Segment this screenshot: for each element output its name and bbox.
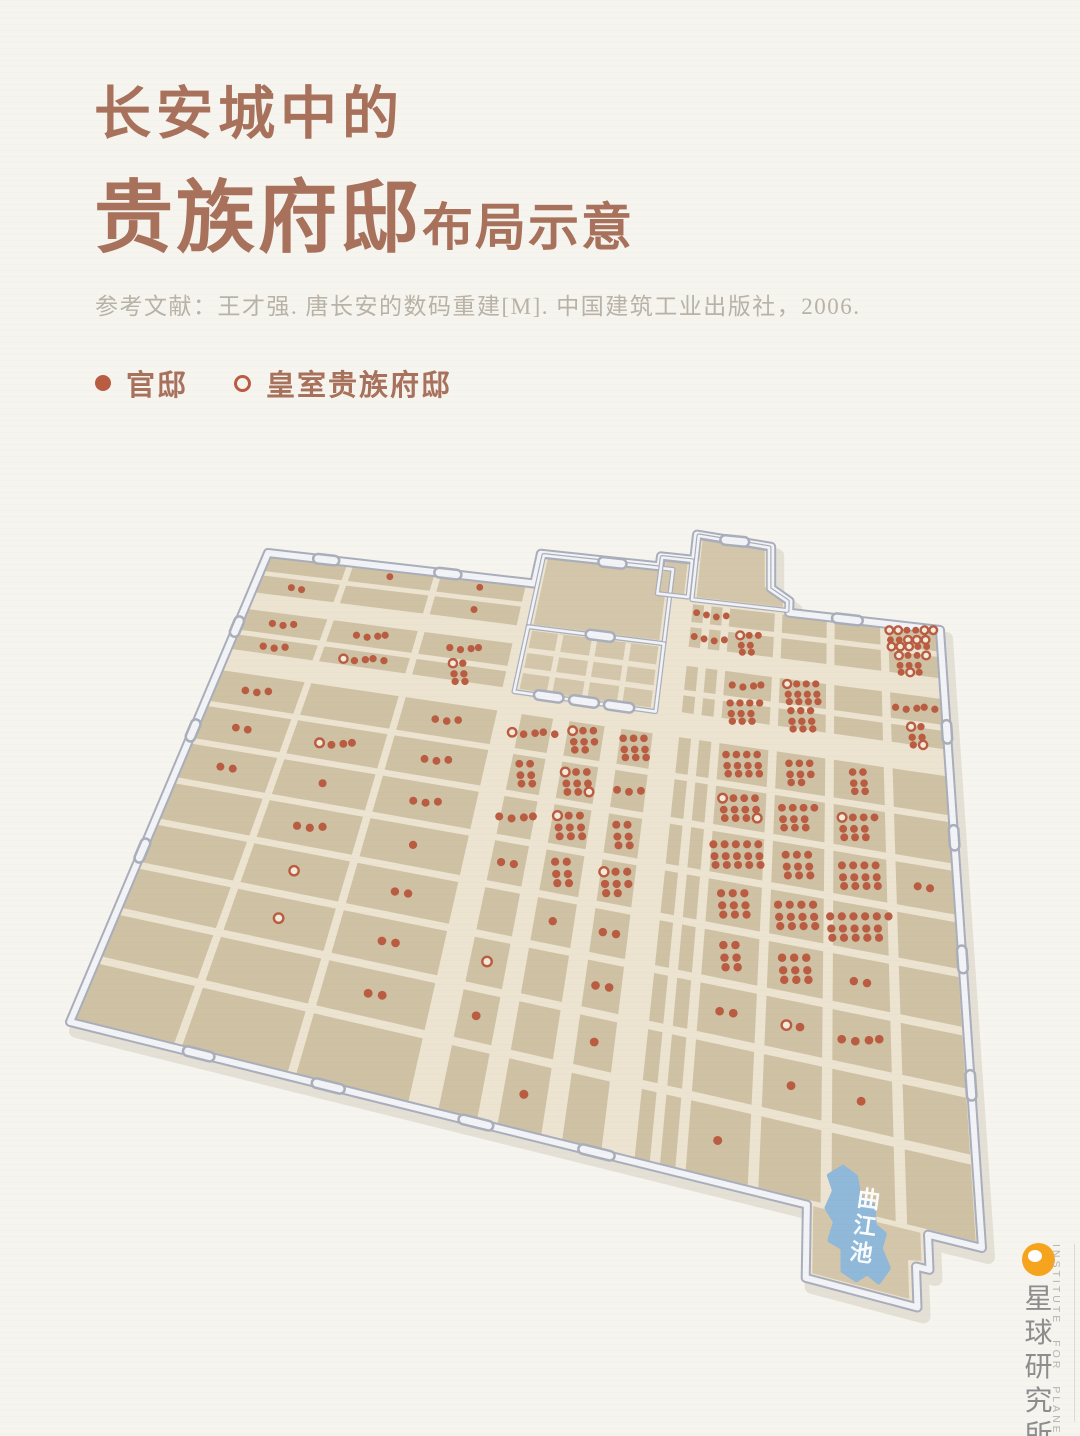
official-residence-dot <box>873 912 881 920</box>
official-residence-dot <box>562 780 570 788</box>
official-residence-dot <box>729 794 737 802</box>
official-residence-dot <box>850 977 858 985</box>
official-residence-dot <box>244 726 252 734</box>
gate-icon-face <box>190 724 195 736</box>
official-residence-dot <box>460 670 467 677</box>
official-residence-dot <box>910 741 917 748</box>
official-residence-dot <box>570 738 578 746</box>
official-residence-dot <box>811 922 819 930</box>
official-residence-dot <box>573 780 581 788</box>
official-residence-dot <box>601 880 609 888</box>
official-residence-dot <box>551 858 559 866</box>
official-residence-dot <box>729 889 737 897</box>
official-residence-dot <box>798 718 805 725</box>
royal-residence-dot <box>289 866 298 875</box>
official-residence-dot <box>475 644 482 651</box>
official-residence-dot <box>613 833 621 841</box>
official-residence-dot <box>797 901 805 909</box>
step-area <box>662 561 688 594</box>
official-residence-dot <box>859 768 867 776</box>
official-residence-dot <box>729 1009 738 1018</box>
official-residence-dot <box>747 710 754 717</box>
official-residence-dot <box>802 824 810 832</box>
official-residence-dot <box>584 780 592 788</box>
official-residence-dot <box>549 917 557 925</box>
official-residence-dot <box>605 983 614 992</box>
official-residence-dot <box>578 832 586 840</box>
gate-icon-face <box>318 559 335 561</box>
official-residence-dot <box>838 912 846 920</box>
royal-residence-dot <box>896 643 904 651</box>
royal-residence-dot <box>905 643 913 651</box>
official-residence-dot <box>721 636 728 643</box>
official-residence-dot <box>495 812 503 820</box>
official-residence-dot <box>719 941 727 949</box>
official-residence-dot <box>551 730 559 738</box>
official-residence-dot <box>915 662 922 669</box>
official-residence-dot <box>828 934 836 942</box>
official-residence-dot <box>260 643 267 650</box>
ward-block <box>589 908 630 959</box>
official-residence-dot <box>731 806 739 814</box>
official-residence-dot <box>784 871 792 879</box>
official-residence-dot <box>386 573 393 580</box>
official-residence-dot <box>787 1081 796 1090</box>
official-residence-dot <box>872 861 880 869</box>
official-residence-dot <box>290 621 297 628</box>
official-residence-dot <box>422 799 430 807</box>
official-residence-dot <box>723 762 731 770</box>
official-residence-dot <box>746 699 753 706</box>
royal-residence-dot <box>482 957 491 966</box>
official-residence-dot <box>783 863 791 871</box>
official-residence-dot <box>904 652 911 659</box>
official-residence-dot <box>875 1035 884 1044</box>
royal-residence-dot <box>782 1020 791 1029</box>
royal-residence-dot <box>449 659 457 667</box>
official-residence-dot <box>510 860 518 868</box>
official-residence-dot <box>641 746 649 754</box>
official-residence-dot <box>794 863 802 871</box>
filled-dot-icon <box>95 375 111 391</box>
official-residence-dot <box>757 681 764 688</box>
official-residence-dot <box>723 612 730 619</box>
official-residence-dot <box>381 632 388 639</box>
official-residence-dot <box>552 870 560 878</box>
official-residence-dot <box>721 963 729 971</box>
official-residence-dot <box>897 662 904 669</box>
official-residence-dot <box>800 804 808 812</box>
gate-icon-face <box>946 725 947 739</box>
official-residence-dot <box>785 691 792 698</box>
official-residence-dot <box>691 633 698 640</box>
page-title-line1: 长安城中的 <box>94 84 634 147</box>
official-residence-dot <box>850 873 858 881</box>
official-residence-dot <box>348 739 356 747</box>
official-residence-dot <box>849 768 857 776</box>
official-residence-dot <box>752 806 760 814</box>
official-residence-dot <box>591 738 599 746</box>
official-residence-dot <box>642 754 650 762</box>
official-residence-dot <box>779 966 787 974</box>
legend-item-official: 官邸 <box>95 362 188 404</box>
ward-block <box>539 849 584 897</box>
official-residence-dot <box>809 725 816 732</box>
official-residence-dot <box>839 825 847 833</box>
official-residence-dot <box>454 716 462 724</box>
official-residence-dot <box>565 812 573 820</box>
official-residence-dot <box>571 746 579 754</box>
official-residence-dot <box>519 1090 528 1099</box>
ward-block <box>581 960 624 1015</box>
official-residence-dot <box>780 824 788 832</box>
official-residence-dot <box>461 678 468 685</box>
official-residence-dot <box>740 794 748 802</box>
official-residence-dot <box>826 912 834 920</box>
official-residence-dot <box>564 788 572 796</box>
official-residence-dot <box>776 922 784 930</box>
royal-residence-dot <box>736 631 744 639</box>
official-residence-dot <box>630 735 638 743</box>
official-residence-dot <box>515 760 523 768</box>
official-residence-dot <box>508 814 516 822</box>
brand-name-en: INSTITUTE FOR PLANETS <box>1050 1244 1062 1436</box>
official-residence-dot <box>378 937 387 946</box>
official-residence-dot <box>591 981 600 990</box>
official-residence-dot <box>790 953 798 961</box>
official-residence-dot <box>614 841 622 849</box>
official-residence-dot <box>719 910 727 918</box>
official-residence-dot <box>863 934 871 942</box>
official-residence-dot <box>339 740 347 748</box>
official-residence-dot <box>812 680 819 687</box>
official-residence-dot <box>713 1136 722 1145</box>
gate-icon-face <box>590 635 610 637</box>
official-residence-dot <box>446 644 453 651</box>
official-residence-dot <box>731 910 739 918</box>
official-residence-dot <box>724 770 732 778</box>
official-residence-dot <box>741 901 749 909</box>
official-residence-dot <box>729 718 736 725</box>
official-residence-dot <box>851 787 859 795</box>
official-residence-dot <box>444 756 452 764</box>
official-residence-dot <box>369 655 376 662</box>
royal-residence-dot <box>913 636 921 644</box>
official-residence-dot <box>810 913 818 921</box>
reference-citation: 参考文献：王才强. 唐长安的数码重建[M]. 中国建筑工业出版社，2006. <box>95 287 861 321</box>
official-residence-dot <box>739 649 746 656</box>
official-residence-dot <box>619 735 627 743</box>
official-residence-dot <box>476 584 483 591</box>
official-residence-dot <box>516 771 524 779</box>
official-residence-dot <box>849 861 857 869</box>
legend-label: 皇室贵族府邸 <box>266 362 452 404</box>
official-residence-dot <box>787 779 795 787</box>
official-residence-dot <box>614 889 622 897</box>
official-residence-dot <box>838 861 846 869</box>
official-residence-dot <box>518 780 526 788</box>
official-residence-dot <box>457 646 464 653</box>
official-residence-dot <box>433 757 441 765</box>
official-residence-dot <box>720 806 728 814</box>
official-residence-dot <box>747 642 754 649</box>
ward-block <box>511 1001 561 1059</box>
official-residence-dot <box>778 804 786 812</box>
official-residence-dot <box>874 882 882 890</box>
official-residence-dot <box>265 688 273 696</box>
official-residence-dot <box>787 913 795 921</box>
official-residence-dot <box>795 698 802 705</box>
royal-residence-dot <box>274 913 283 922</box>
official-residence-dot <box>796 759 804 767</box>
official-residence-dot <box>583 768 591 776</box>
royal-residence-dot <box>906 668 914 676</box>
official-residence-dot <box>738 718 745 725</box>
royal-residence-dot <box>907 723 915 731</box>
official-residence-dot <box>732 840 740 848</box>
royal-residence-dot <box>599 867 608 876</box>
official-residence-dot <box>637 787 645 795</box>
gate-icon-face <box>837 618 858 620</box>
official-residence-dot <box>804 691 811 698</box>
official-residence-dot <box>564 870 572 878</box>
official-residence-dot <box>253 689 261 697</box>
royal-residence-dot <box>718 794 727 803</box>
official-residence-dot <box>733 751 741 759</box>
official-residence-dot <box>623 868 631 876</box>
ward-block <box>704 668 718 694</box>
official-residence-dot <box>728 710 735 717</box>
official-residence-dot <box>789 725 796 732</box>
official-residence-dot <box>306 824 314 832</box>
official-residence-dot <box>746 632 753 639</box>
official-residence-dot <box>756 699 763 706</box>
official-residence-dot <box>737 710 744 717</box>
official-residence-dot <box>579 727 587 735</box>
royal-residence-dot <box>508 728 516 736</box>
royal-residence-dot <box>886 626 894 634</box>
official-residence-dot <box>786 771 794 779</box>
official-residence-dot <box>860 779 868 787</box>
gate-icon-face <box>970 1075 971 1096</box>
official-residence-dot <box>754 840 762 848</box>
official-residence-dot <box>791 824 799 832</box>
royal-residence-dot <box>568 726 576 734</box>
official-residence-dot <box>803 966 811 974</box>
official-residence-dot <box>860 861 868 869</box>
ward-block <box>682 695 696 714</box>
official-residence-dot <box>849 813 857 821</box>
gate-icon-face <box>962 950 963 968</box>
official-residence-dot <box>735 770 743 778</box>
infographic-page: 曲江池 长安城中的 贵族府邸布局示意 参考文献：王才强. 唐长安的数码重建[M]… <box>0 0 1080 1436</box>
official-residence-dot <box>520 813 528 821</box>
official-residence-dot <box>572 768 580 776</box>
official-residence-dot <box>712 861 720 869</box>
official-residence-dot <box>804 851 812 859</box>
official-residence-dot <box>903 627 910 634</box>
official-residence-dot <box>873 873 881 881</box>
official-residence-dot <box>745 770 753 778</box>
official-residence-dot <box>849 912 857 920</box>
official-residence-dot <box>631 746 639 754</box>
official-residence-dot <box>581 746 589 754</box>
official-residence-dot <box>731 941 739 949</box>
official-residence-dot <box>709 840 717 848</box>
official-residence-dot <box>861 787 869 795</box>
official-residence-dot <box>288 584 295 591</box>
official-residence-dot <box>374 633 381 640</box>
official-residence-dot <box>793 680 800 687</box>
official-residence-dot <box>711 637 718 644</box>
official-residence-dot <box>623 821 631 829</box>
planet-icon-highlight <box>1028 1250 1042 1262</box>
ward-block <box>684 666 698 692</box>
official-residence-dot <box>898 669 905 676</box>
official-residence-dot <box>531 729 539 737</box>
official-residence-dot <box>404 889 412 897</box>
official-residence-dot <box>875 934 883 942</box>
official-residence-dot <box>451 678 458 685</box>
official-residence-dot <box>840 934 848 942</box>
official-residence-dot <box>840 882 848 890</box>
official-residence-dot <box>914 643 921 650</box>
ward-block <box>834 760 885 806</box>
official-residence-dot <box>850 825 858 833</box>
official-residence-dot <box>527 771 535 779</box>
official-residence-dot <box>612 930 620 938</box>
official-residence-dot <box>753 751 761 759</box>
official-residence-dot <box>734 762 742 770</box>
gate-icon-face <box>574 700 594 703</box>
official-residence-dot <box>884 912 892 920</box>
official-residence-dot <box>803 680 810 687</box>
official-residence-dot <box>862 833 870 841</box>
official-residence-dot <box>797 707 804 714</box>
official-residence-dot <box>351 657 358 664</box>
official-residence-dot <box>528 780 536 788</box>
gate-icon-face <box>609 705 630 708</box>
official-residence-dot <box>793 851 801 859</box>
official-residence-dot <box>566 823 574 831</box>
official-residence-dot <box>459 660 466 667</box>
official-residence-dot <box>914 882 922 890</box>
official-residence-dot <box>805 863 813 871</box>
official-residence-dot <box>409 797 417 805</box>
official-residence-dot <box>574 788 582 796</box>
official-residence-dot <box>792 976 800 984</box>
official-residence-dot <box>720 953 728 961</box>
official-residence-dot <box>270 645 277 652</box>
official-residence-dot <box>563 858 571 866</box>
official-residence-dot <box>787 707 794 714</box>
gate-icon-face <box>235 621 240 632</box>
official-residence-dot <box>625 788 633 796</box>
legend-item-royal: 皇室贵族府邸 <box>234 362 452 404</box>
official-residence-dot <box>903 706 910 713</box>
official-residence-dot <box>857 1097 866 1106</box>
page-title-emphasis: 贵族府邸 <box>94 176 422 263</box>
official-residence-dot <box>794 691 801 698</box>
official-residence-dot <box>742 910 750 918</box>
royal-residence-dot <box>753 814 762 823</box>
official-residence-dot <box>748 718 755 725</box>
official-residence-dot <box>861 912 869 920</box>
official-residence-dot <box>553 879 561 887</box>
official-residence-dot <box>775 913 783 921</box>
official-residence-dot <box>742 814 750 822</box>
royal-residence-dot <box>894 626 902 634</box>
royal-residence-dot <box>921 626 929 634</box>
royal-residence-dot <box>888 643 896 651</box>
official-residence-dot <box>380 657 387 664</box>
official-residence-dot <box>364 634 371 641</box>
official-residence-dot <box>931 706 938 713</box>
official-residence-dot <box>802 953 810 961</box>
official-residence-dot <box>443 717 451 725</box>
official-residence-dot <box>813 691 820 698</box>
royal-residence-dot <box>315 739 324 748</box>
official-residence-dot <box>721 840 729 848</box>
official-residence-dot <box>863 979 871 987</box>
official-residence-dot <box>862 924 870 932</box>
gate-icon-face <box>725 540 744 542</box>
official-residence-dot <box>912 627 919 634</box>
official-residence-dot <box>863 882 871 890</box>
royal-residence-dot <box>585 788 594 797</box>
official-residence-dot <box>851 882 859 890</box>
official-residence-dot <box>926 884 934 892</box>
official-residence-dot <box>216 763 224 771</box>
official-residence-dot <box>467 645 474 652</box>
official-residence-dot <box>580 738 588 746</box>
official-residence-dot <box>556 832 564 840</box>
official-residence-dot <box>743 751 751 759</box>
official-residence-dot <box>806 759 814 767</box>
official-residence-dot <box>732 814 740 822</box>
official-residence-dot <box>450 670 457 677</box>
official-residence-dot <box>470 606 477 613</box>
brand-divider <box>1074 1244 1075 1422</box>
official-residence-dot <box>806 871 814 879</box>
royal-residence-dot <box>339 655 347 663</box>
official-residence-dot <box>799 725 806 732</box>
official-residence-dot <box>795 871 803 879</box>
hollow-dot-icon <box>234 375 251 392</box>
official-residence-dot <box>622 754 630 762</box>
title-block: 长安城中的 贵族府邸布局示意 <box>94 84 634 268</box>
official-residence-dot <box>871 813 879 821</box>
official-residence-dot <box>786 901 794 909</box>
official-residence-dot <box>740 889 748 897</box>
official-residence-dot <box>722 751 730 759</box>
official-residence-dot <box>520 730 528 738</box>
official-residence-dot <box>632 754 640 762</box>
official-residence-dot <box>892 704 899 711</box>
official-residence-dot <box>860 813 868 821</box>
legend: 官邸 皇室贵族府邸 <box>95 362 452 404</box>
official-residence-dot <box>298 586 305 593</box>
ward-block <box>604 813 643 858</box>
official-residence-dot <box>229 765 237 773</box>
official-residence-dot <box>807 707 814 714</box>
royal-residence-dot <box>553 811 562 820</box>
official-residence-dot <box>916 669 923 676</box>
official-residence-dot <box>751 794 759 802</box>
royal-residence-dot <box>838 813 847 822</box>
official-residence-dot <box>715 1007 724 1016</box>
official-residence-dot <box>722 852 730 860</box>
